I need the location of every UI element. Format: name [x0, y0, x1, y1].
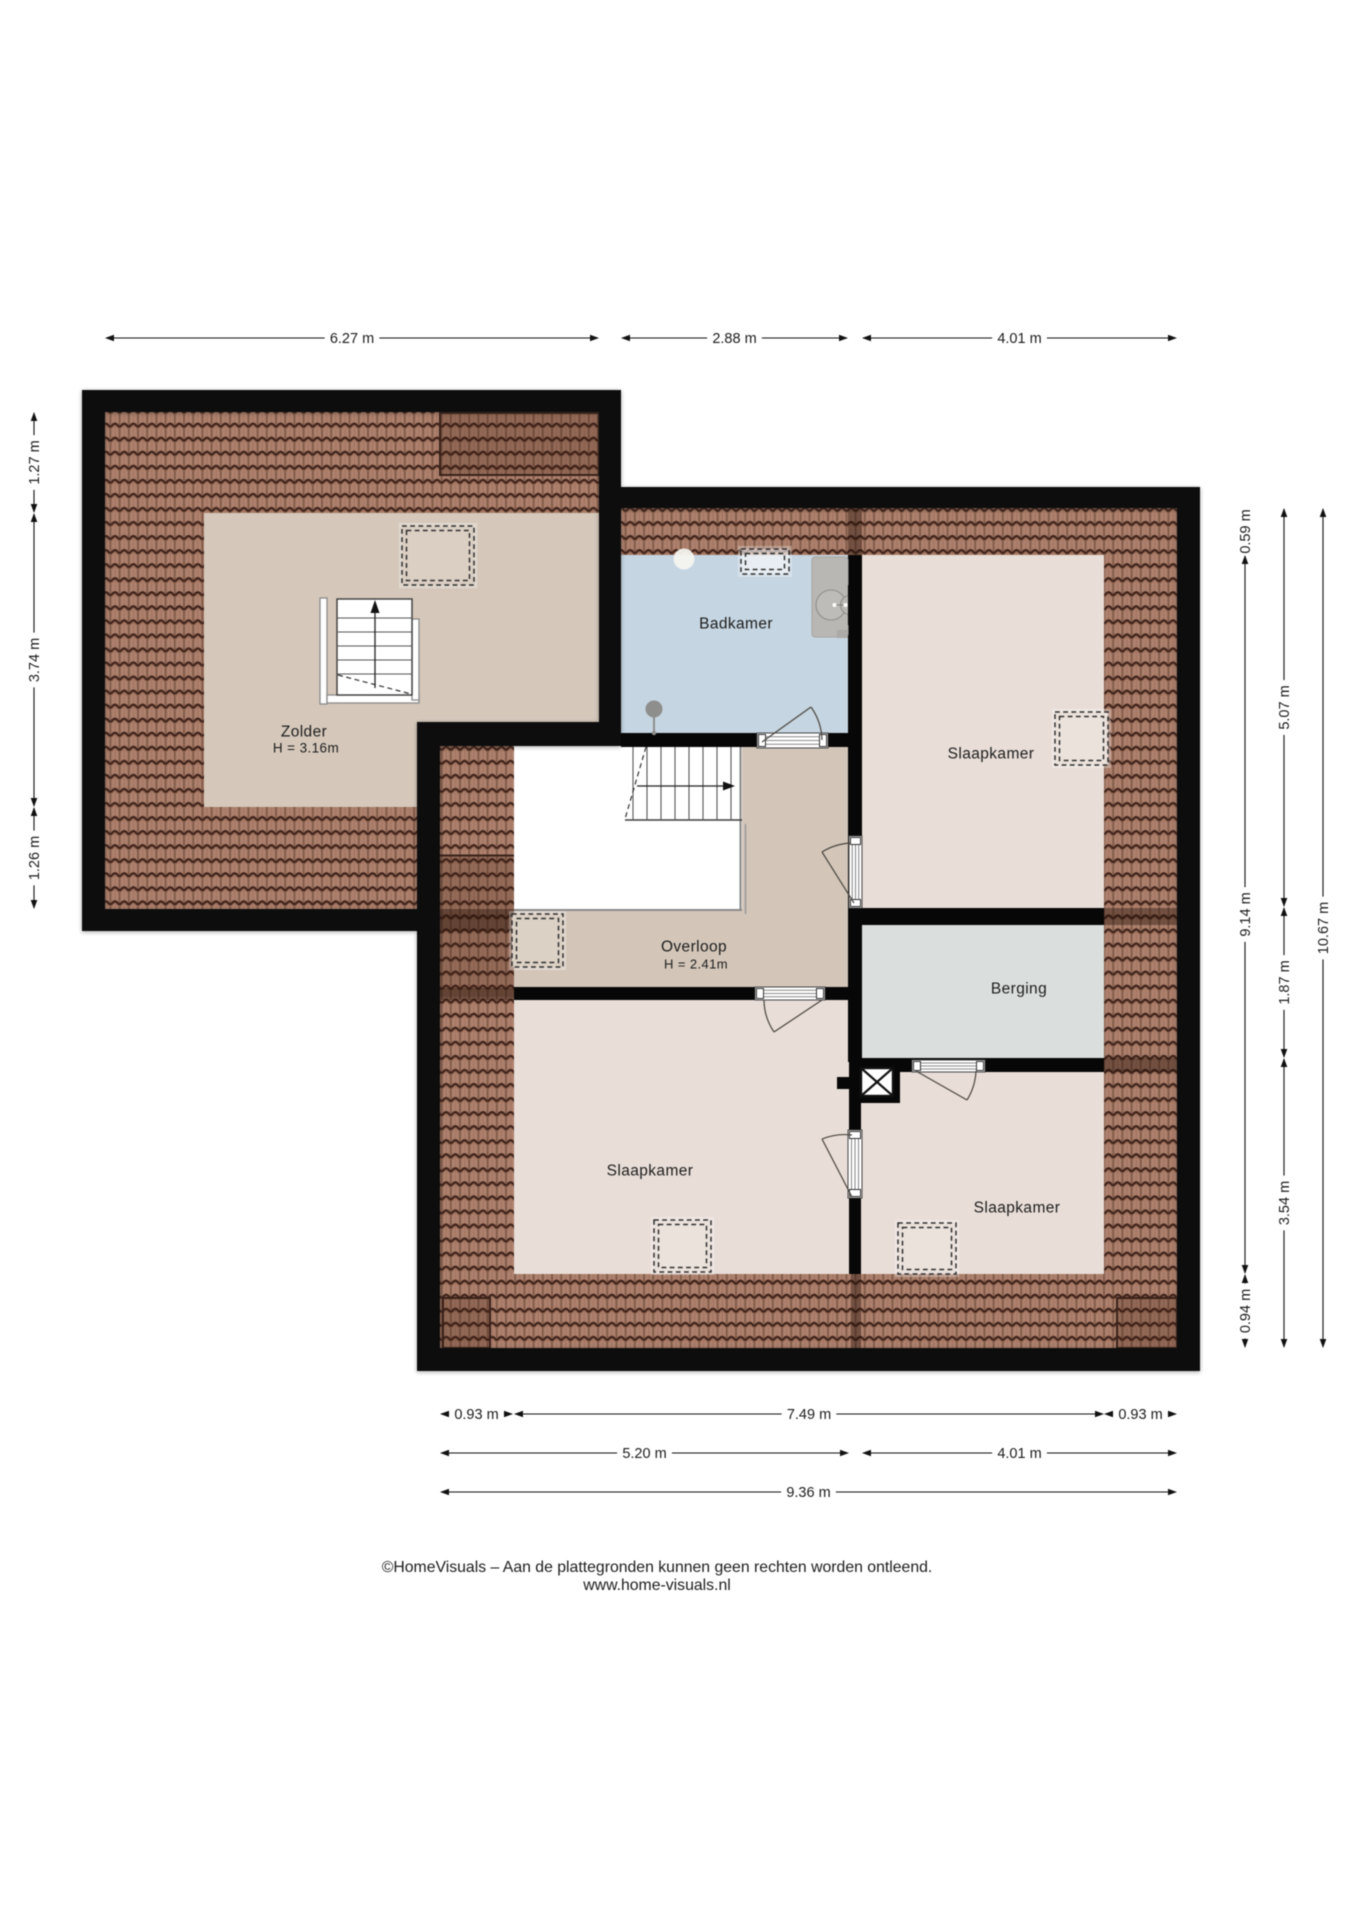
- svg-text:10.67 m: 10.67 m: [1316, 902, 1332, 954]
- svg-text:7.49 m: 7.49 m: [787, 1407, 831, 1423]
- svg-text:Badkamer: Badkamer: [699, 615, 773, 632]
- svg-text:9.14 m: 9.14 m: [1238, 892, 1254, 936]
- svg-text:4.01 m: 4.01 m: [997, 1446, 1041, 1462]
- svg-text:9.36 m: 9.36 m: [786, 1485, 830, 1501]
- svg-text:5.20 m: 5.20 m: [622, 1446, 666, 1462]
- svg-text:Overloop: Overloop: [661, 938, 727, 955]
- svg-text:1.27 m: 1.27 m: [27, 440, 43, 484]
- svg-text:0.93 m: 0.93 m: [454, 1407, 498, 1423]
- svg-text:H = 2.41m: H = 2.41m: [664, 957, 728, 972]
- svg-text:3.54 m: 3.54 m: [1277, 1181, 1293, 1225]
- svg-text:H = 3.16m: H = 3.16m: [273, 741, 339, 756]
- svg-text:©HomeVisuals – Aan de plattegr: ©HomeVisuals – Aan de plattegronden kunn…: [382, 1559, 933, 1576]
- svg-text:2.88 m: 2.88 m: [712, 331, 756, 347]
- svg-text:3.74 m: 3.74 m: [27, 638, 43, 682]
- svg-text:5.07 m: 5.07 m: [1277, 685, 1293, 729]
- svg-text:Slaapkamer: Slaapkamer: [948, 745, 1035, 762]
- svg-text:0.59 m: 0.59 m: [1238, 509, 1254, 553]
- svg-text:Berging: Berging: [991, 980, 1047, 997]
- svg-text:Slaapkamer: Slaapkamer: [607, 1162, 694, 1179]
- svg-text:0.94 m: 0.94 m: [1238, 1289, 1254, 1333]
- svg-text:6.27 m: 6.27 m: [330, 331, 374, 347]
- svg-text:4.01 m: 4.01 m: [997, 331, 1041, 347]
- svg-text:1.26 m: 1.26 m: [27, 836, 43, 880]
- svg-text:Slaapkamer: Slaapkamer: [974, 1199, 1061, 1216]
- svg-text:1.87 m: 1.87 m: [1277, 960, 1293, 1004]
- svg-text:Zolder: Zolder: [281, 723, 327, 740]
- svg-text:0.93 m: 0.93 m: [1118, 1407, 1162, 1423]
- svg-text:www.home-visuals.nl: www.home-visuals.nl: [582, 1577, 731, 1594]
